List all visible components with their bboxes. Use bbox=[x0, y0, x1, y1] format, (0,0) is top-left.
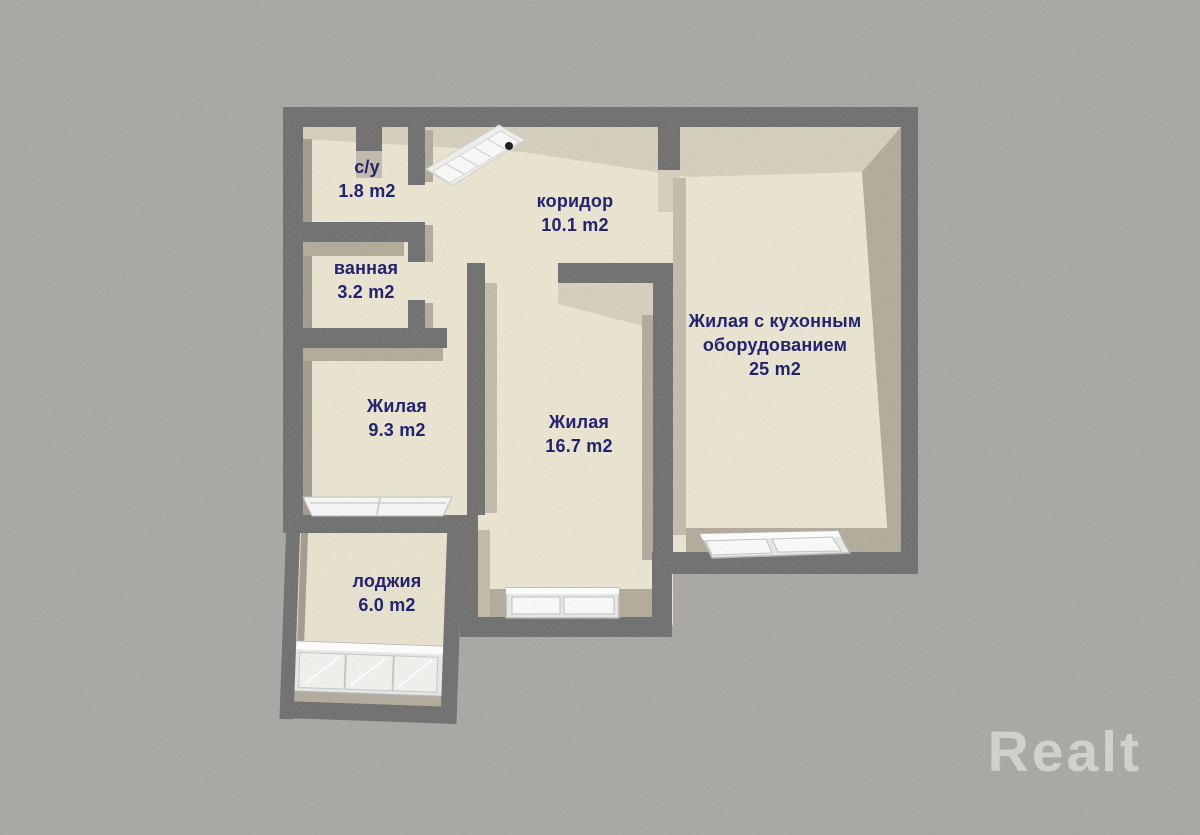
room-name: коридор bbox=[537, 189, 614, 213]
room-label-living-16: Жилая 16.7 m2 bbox=[545, 410, 612, 458]
room-label-bathroom: ванная 3.2 m2 bbox=[334, 256, 398, 304]
room-name: оборудованием bbox=[689, 333, 862, 357]
room-area: 6.0 m2 bbox=[353, 593, 422, 617]
room-area: 16.7 m2 bbox=[545, 434, 612, 458]
room-area: 9.3 m2 bbox=[367, 418, 427, 442]
room-name: Жилая с кухонным bbox=[689, 309, 862, 333]
room-label-living-kitchen: Жилая с кухонным оборудованием 25 m2 bbox=[689, 309, 862, 381]
room-label-living-9: Жилая 9.3 m2 bbox=[367, 394, 427, 442]
room-name: с/у bbox=[338, 155, 395, 179]
room-area: 10.1 m2 bbox=[537, 213, 614, 237]
floorplan-canvas: с/у 1.8 m2 ванная 3.2 m2 коридор 10.1 m2… bbox=[0, 0, 1200, 835]
room-area: 25 m2 bbox=[689, 357, 862, 381]
room-name: ванная bbox=[334, 256, 398, 280]
room-name: Жилая bbox=[545, 410, 612, 434]
room-area: 3.2 m2 bbox=[334, 280, 398, 304]
room-label-corridor: коридор 10.1 m2 bbox=[537, 189, 614, 237]
room-label-wc: с/у 1.8 m2 bbox=[338, 155, 395, 203]
room-name: Жилая bbox=[367, 394, 427, 418]
realt-watermark-logo: Realt bbox=[988, 719, 1142, 785]
room-name: лоджия bbox=[353, 569, 422, 593]
room-label-loggia: лоджия 6.0 m2 bbox=[353, 569, 422, 617]
room-area: 1.8 m2 bbox=[338, 179, 395, 203]
